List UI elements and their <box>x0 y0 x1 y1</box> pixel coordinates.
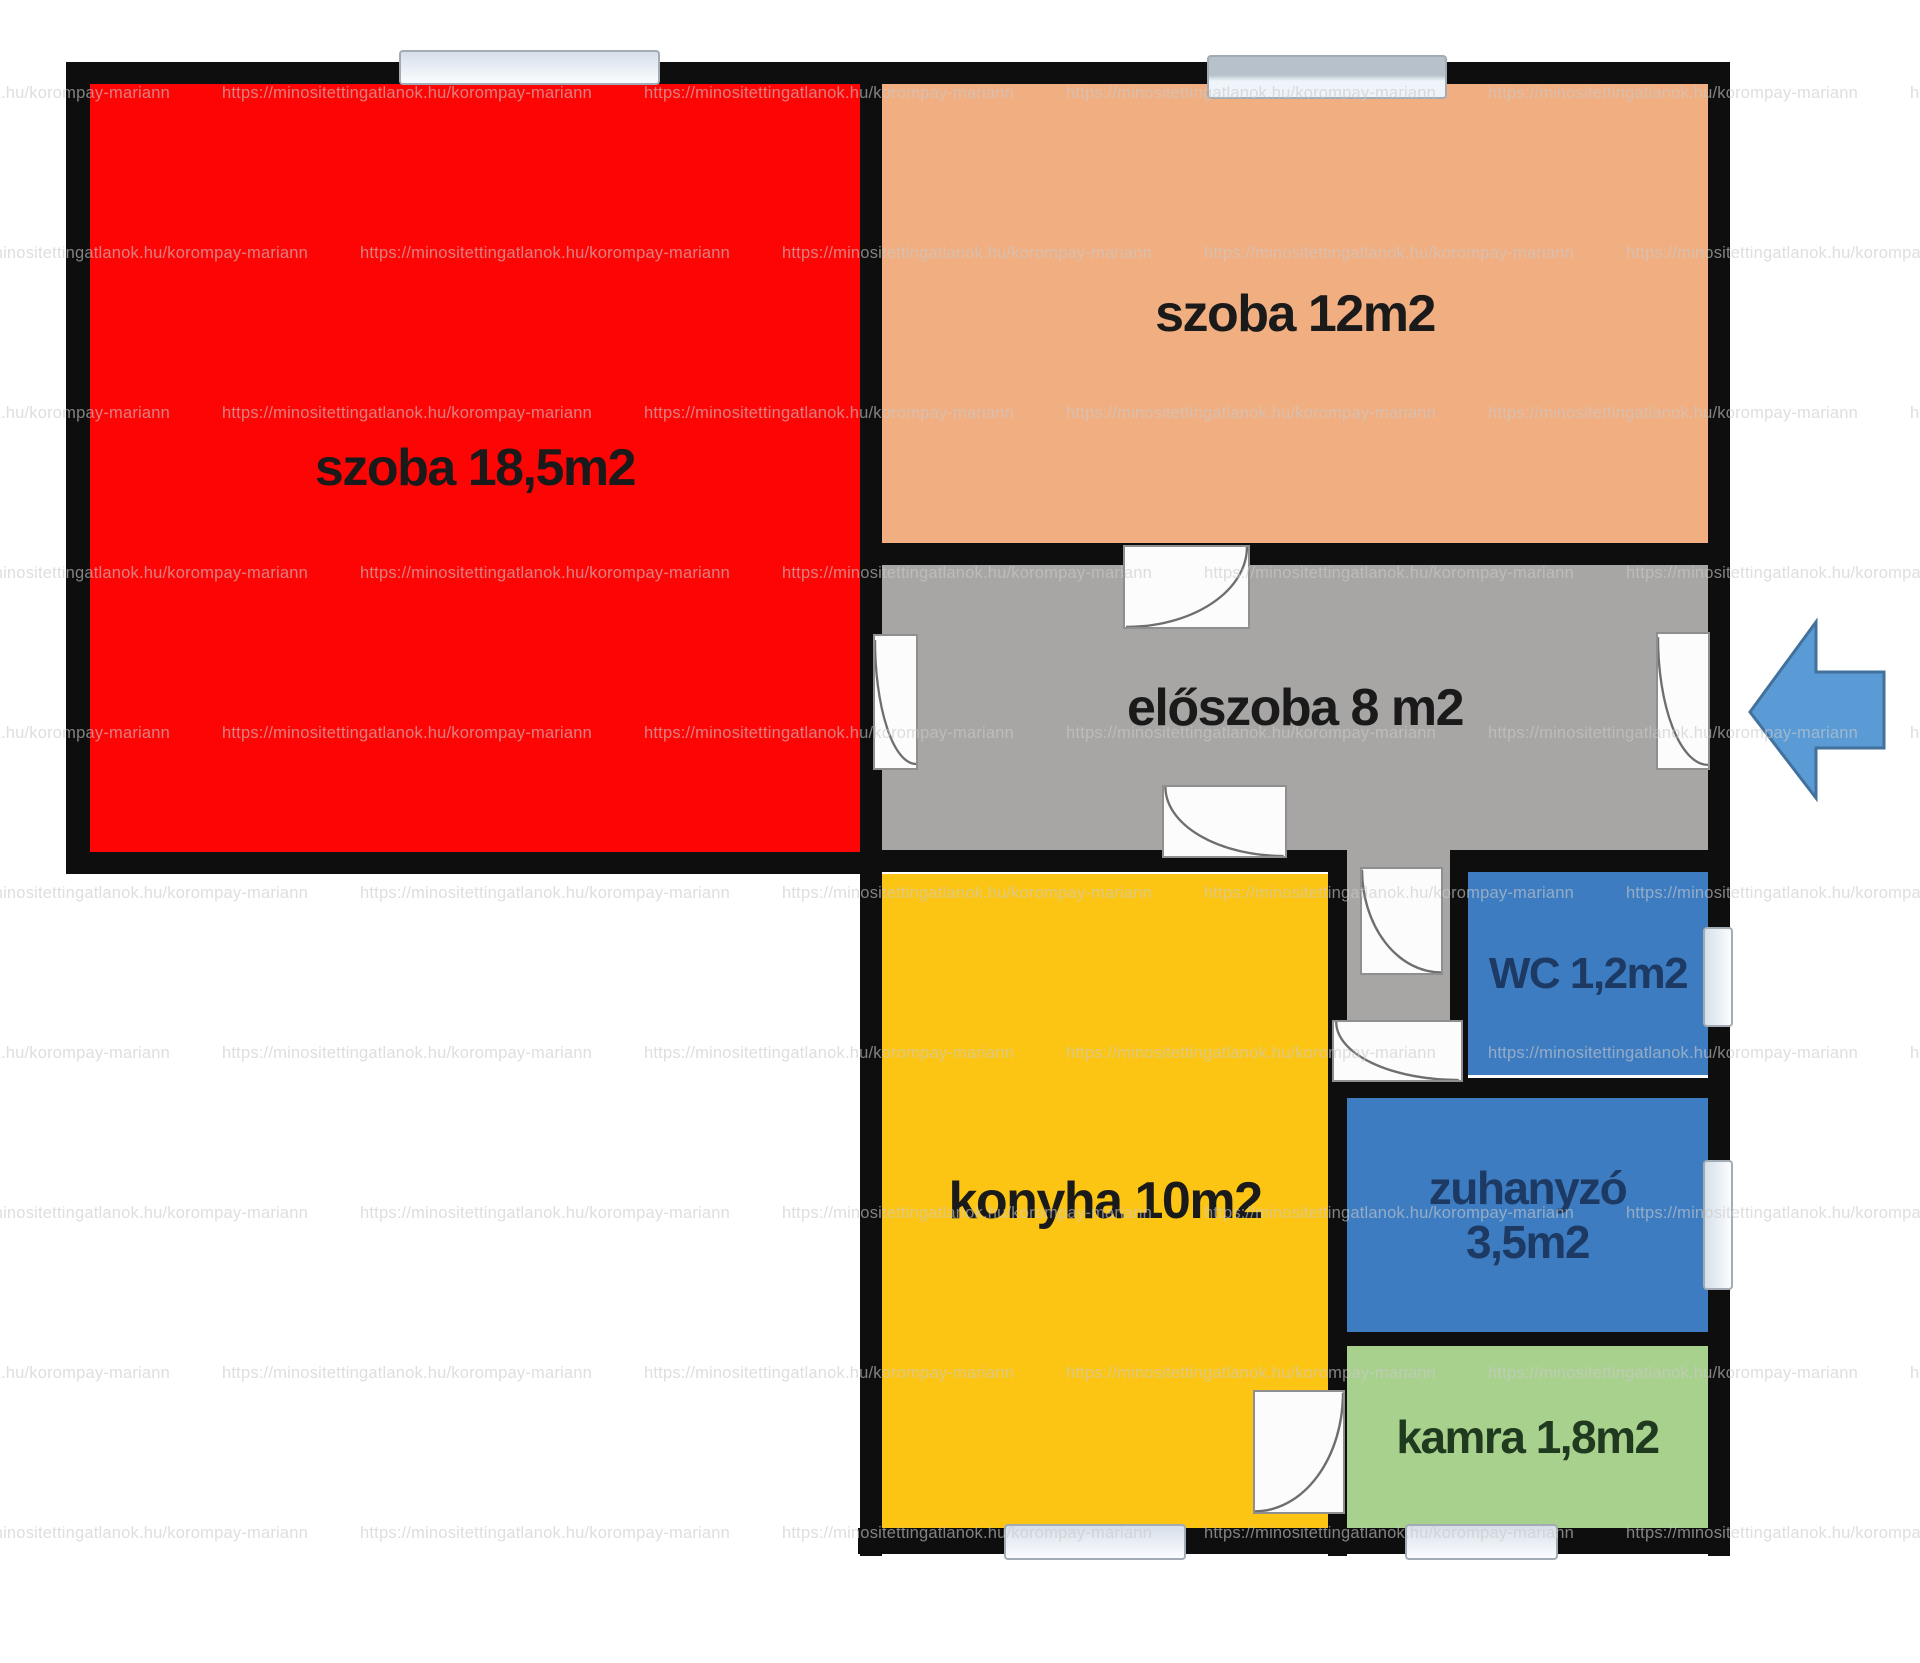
wall-szoba12-bottom <box>882 543 1708 565</box>
window-icon <box>1207 55 1447 99</box>
entrance-door-icon <box>1656 632 1710 770</box>
room-kamra: kamra 1,8m2 <box>1347 1346 1708 1528</box>
watermark-text: https://minositettingatlanok.hu/korompay… <box>360 1524 730 1543</box>
wall-eloszoba-bottom-right <box>1450 850 1708 872</box>
room-label: előszoba 8 m2 <box>1127 678 1463 738</box>
watermark-text: https://minositettingatlanok.hu/korompay… <box>1910 724 1920 743</box>
room-wc: WC 1,2m2 <box>1468 872 1708 1075</box>
watermark-text: https://minositettingatlanok.hu/korompay… <box>0 1044 170 1063</box>
door-swing-arc <box>875 636 916 768</box>
watermark-text: https://minositettingatlanok.hu/korompay… <box>1910 1044 1920 1063</box>
watermark-text: https://minositettingatlanok.hu/korompay… <box>1910 84 1920 103</box>
room-eloszoba: előszoba 8 m2 <box>882 565 1708 850</box>
door-swing-arc <box>1255 1392 1343 1512</box>
window-icon <box>1703 927 1733 1027</box>
watermark-text: https://minositettingatlanok.hu/korompay… <box>1910 1364 1920 1383</box>
watermark-text: https://minositettingatlanok.hu/korompay… <box>222 1044 592 1063</box>
door-icon <box>1360 867 1443 975</box>
wall-left <box>66 62 90 874</box>
wall-bottom <box>858 1528 1730 1554</box>
watermark-text: https://minositettingatlanok.hu/korompay… <box>0 884 308 903</box>
door-swing-arc <box>1362 869 1441 973</box>
entrance-arrow-icon <box>1746 614 1890 804</box>
window-icon <box>1405 1524 1558 1560</box>
door-swing-arc <box>1658 634 1708 768</box>
door-icon <box>1123 545 1250 629</box>
wall-szoba185-bottom <box>66 852 882 874</box>
watermark-text: https://minositettingatlanok.hu/korompay… <box>360 1204 730 1223</box>
door-swing-arc <box>1334 1022 1461 1080</box>
wall-right <box>1708 62 1730 1556</box>
room-szoba-12: szoba 12m2 <box>882 84 1708 543</box>
room-label: konyha 10m2 <box>949 1171 1262 1231</box>
door-icon <box>1162 785 1287 858</box>
room-label: szoba 18,5m2 <box>315 438 635 498</box>
room-label: zuhanyzó <box>1429 1161 1627 1215</box>
door-swing-arc <box>1164 787 1285 856</box>
door-icon <box>1332 1020 1463 1082</box>
room-label: szoba 12m2 <box>1155 284 1435 344</box>
wall-top <box>66 62 1730 84</box>
watermark-text: https://minositettingatlanok.hu/korompay… <box>1910 404 1920 423</box>
room-zuhanyzo: zuhanyzó 3,5m2 <box>1347 1098 1708 1332</box>
window-icon <box>1004 1524 1186 1560</box>
watermark-text: https://minositettingatlanok.hu/korompay… <box>0 1204 308 1223</box>
room-label: kamra 1,8m2 <box>1396 1410 1658 1464</box>
watermark-text: https://minositettingatlanok.hu/korompay… <box>0 1524 308 1543</box>
room-label: WC 1,2m2 <box>1489 949 1687 999</box>
wall-kamra-top <box>1332 1332 1708 1346</box>
room-szoba-18-5: szoba 18,5m2 <box>90 84 860 852</box>
door-icon <box>873 634 918 770</box>
entrance-arrow-shape <box>1750 622 1884 798</box>
watermark-text: https://minositettingatlanok.hu/korompay… <box>0 1364 170 1383</box>
window-icon <box>399 50 660 85</box>
watermark-text: https://minositettingatlanok.hu/korompay… <box>360 884 730 903</box>
door-swing-arc <box>1125 547 1248 627</box>
door-icon <box>1253 1390 1345 1514</box>
room-area-label: 3,5m2 <box>1466 1215 1589 1269</box>
floor-plan: szoba 18,5m2 szoba 12m2 előszoba 8 m2 ko… <box>0 0 1920 1663</box>
watermark-text: https://minositettingatlanok.hu/korompay… <box>222 1364 592 1383</box>
window-icon <box>1703 1160 1733 1290</box>
wall-center-vertical <box>860 62 882 1556</box>
